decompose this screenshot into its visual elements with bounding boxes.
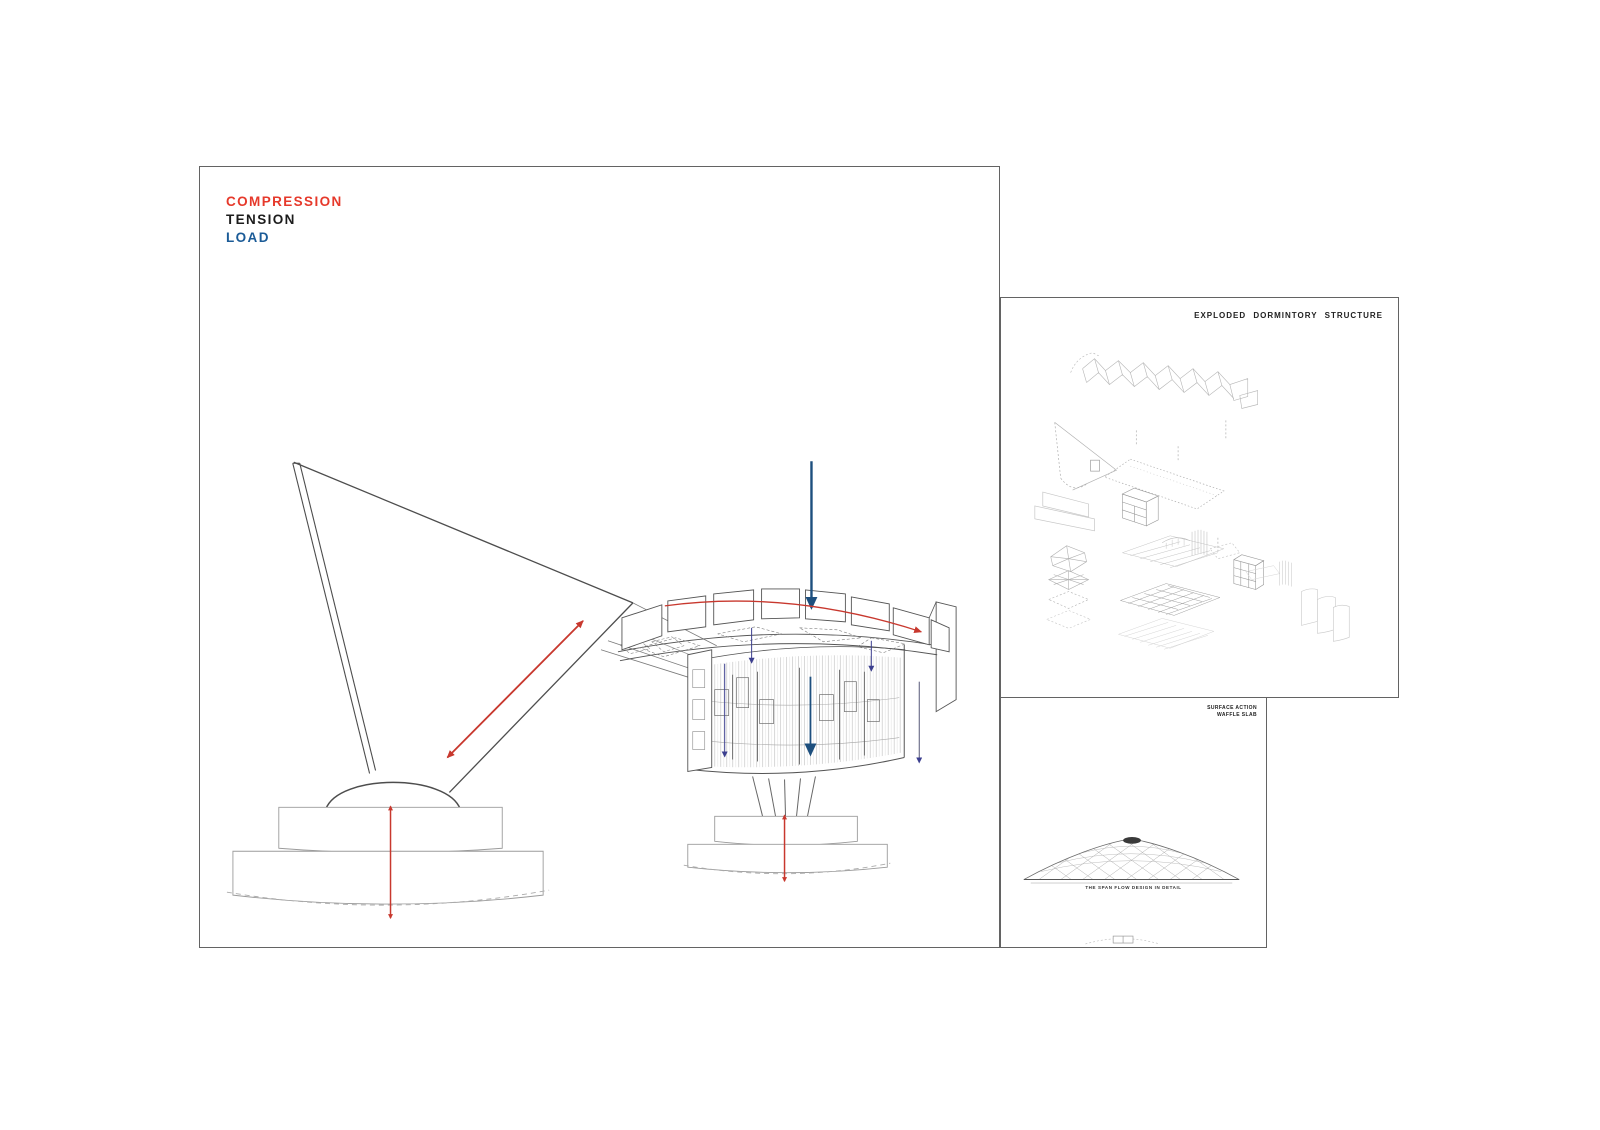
main-diagram-panel: COMPRESSION TENSION LOAD [199,166,1000,948]
waffle-footnote: THE SPAN FLOW DESIGN IN DETAIL [1001,885,1266,890]
exploded-axon-drawing [1001,298,1398,697]
legend-tension-label: TENSION [226,211,343,229]
force-legend: COMPRESSION TENSION LOAD [226,193,343,247]
left-foundation [227,807,549,905]
legend-load-label: LOAD [226,229,343,247]
exploded-cone [1035,422,1117,530]
foundation-plan-sketch [1085,936,1159,944]
exploded-plate-column [1047,546,1091,629]
right-foundation [684,816,890,873]
exploded-roof-strip [1071,353,1258,409]
lattice-dome-elevation [1006,837,1257,887]
exploded-panel-title: EXPLODED DORMINTORY STRUCTURE [1194,311,1383,320]
waffle-caption-line1: SURFACE ACTION [1207,705,1257,712]
waffle-dome-drawing [1001,698,1266,947]
waffle-caption: SURFACE ACTION WAFFLE SLAB [1207,705,1257,719]
exploded-right-parts [1162,530,1349,641]
drum-legs [753,776,816,816]
waffle-caption-line2: WAFFLE SLAB [1207,712,1257,719]
waffle-slab-panel: SURFACE ACTION WAFFLE SLAB THE SPAN FLOW [1000,697,1267,948]
exploded-grid-mats [1118,536,1223,649]
exploded-floor-slab [1104,420,1225,551]
exploded-structure-panel: EXPLODED DORMINTORY STRUCTURE [1000,297,1399,698]
legend-compression-label: COMPRESSION [226,193,343,211]
structural-force-diagram [200,167,999,947]
